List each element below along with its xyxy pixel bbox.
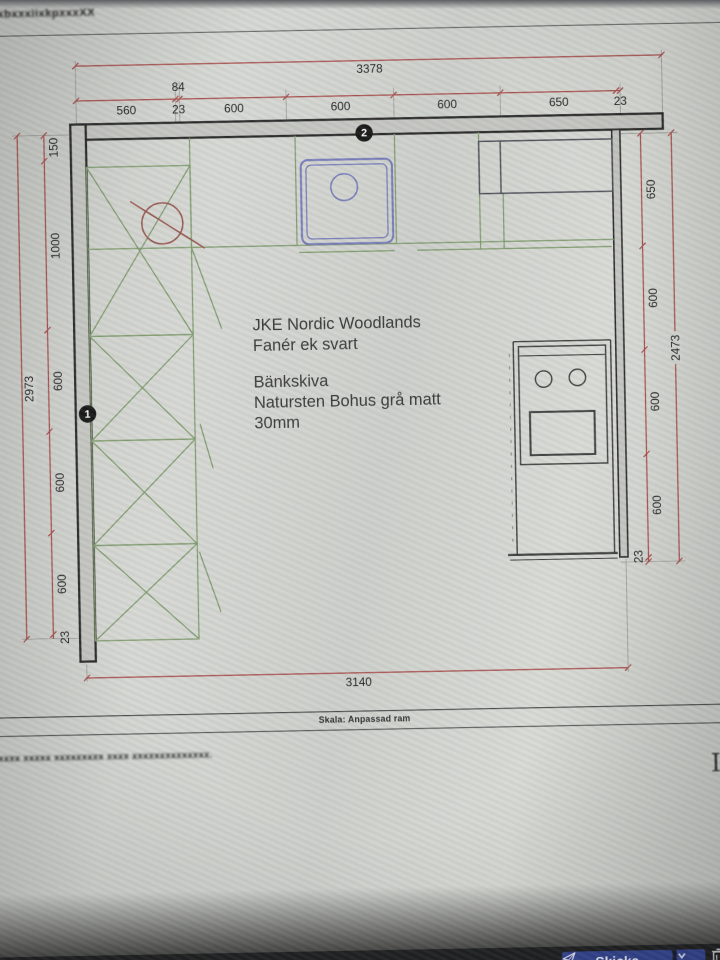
dim-right-seg: 600 [649, 392, 662, 412]
dim-left-total: 2973 [24, 373, 37, 406]
dim-right-seg: 23 [633, 550, 646, 563]
note-line: JKE Nordic Woodlands [252, 312, 439, 336]
screen-top-edge [0, 0, 720, 9]
note-line: 30mm [254, 411, 441, 435]
dim-top-small: 84 [172, 81, 185, 94]
plan-notes: JKE Nordic Woodlands Fanér ek svart Bänk… [252, 312, 441, 434]
dim-left-seg: 600 [52, 371, 65, 391]
dim-top-seg: 600 [331, 101, 351, 114]
send-options-button[interactable] [677, 949, 706, 960]
oven-tower [504, 340, 618, 560]
dim-right-total: 2473 [670, 332, 683, 365]
sink [301, 159, 394, 245]
dim-top-seg: 650 [549, 97, 569, 110]
floor-plan-drawing [0, 0, 720, 960]
dim-top-seg: 600 [224, 103, 244, 116]
note-line: Natursten Bohus grå matt [254, 390, 441, 414]
screen-photo: xxxbxxxiixkpxxxXX [0, 0, 720, 960]
document-page: xxxbxxxiixkpxxxXX [0, 0, 720, 960]
trash-icon [710, 947, 720, 960]
wall-cabinet [479, 139, 613, 194]
dim-top-seg: 560 [116, 105, 136, 118]
send-button-label: Skicka [595, 953, 639, 960]
dim-right-seg: 600 [647, 288, 660, 308]
dim-top-seg: 600 [437, 99, 457, 112]
dim-left-seg: 1000 [50, 233, 63, 259]
dim-right-seg: 650 [645, 179, 658, 199]
dim-top-seg: 23 [172, 104, 185, 117]
trash-button[interactable] [710, 947, 720, 960]
oven-door [530, 411, 595, 455]
circle-symbol [130, 200, 205, 250]
send-button[interactable]: Skicka [562, 950, 673, 960]
dim-top-seg: 23 [614, 96, 627, 109]
oven-knob-right [569, 369, 586, 386]
dim-left-seg: 600 [56, 574, 69, 594]
chevron-down-icon [677, 949, 687, 960]
dim-right-seg: 600 [651, 495, 664, 515]
dim-left-seg: 150 [48, 138, 61, 158]
dim-left-seg: 23 [59, 631, 72, 644]
dim-top-total: 3378 [356, 63, 382, 76]
page-marker: I [711, 748, 720, 778]
faucet-hole [331, 174, 358, 201]
dim-left-seg: 600 [54, 473, 67, 493]
oven-knob-left [535, 371, 552, 388]
dim-bottom-total: 3140 [346, 677, 372, 690]
paper-plane-icon [562, 952, 577, 960]
